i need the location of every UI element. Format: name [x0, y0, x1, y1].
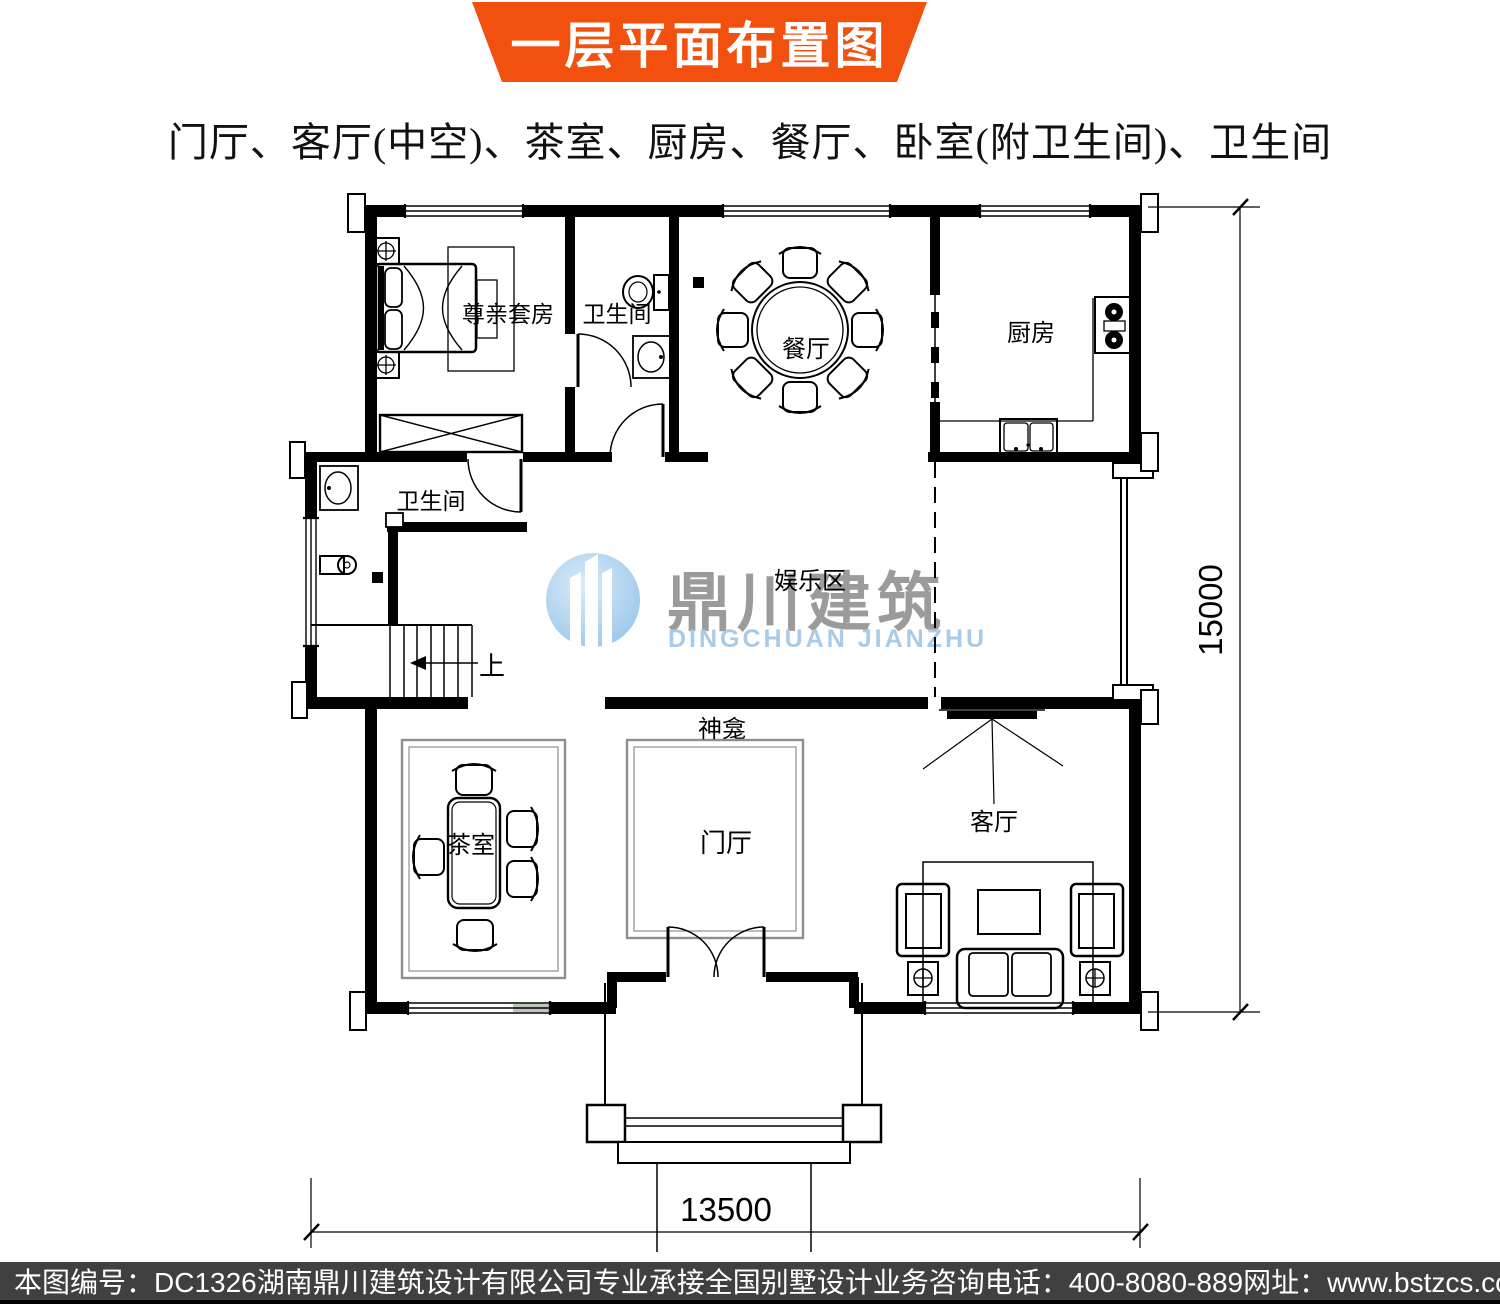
- watermark-logo: 鼎川建筑 DINGCHUAN JIANZHU: [541, 541, 987, 653]
- sofa-set: [897, 862, 1123, 1008]
- room-label-dining: 餐厅: [782, 336, 830, 363]
- wall-cap: [386, 513, 403, 527]
- kitchen-counter: [940, 297, 1130, 421]
- dining-table: [717, 247, 883, 413]
- doors: [468, 334, 764, 977]
- room-label-kitchen: 厨房: [1007, 320, 1055, 347]
- footer-company: 湖南鼎川建筑设计有限公司专业承接全国别墅设计业务: [257, 1261, 929, 1301]
- switch-icon: [693, 277, 704, 288]
- kitchen-sliding-door: [931, 295, 939, 402]
- footer-phone: 咨询电话：400-8080-889: [929, 1261, 1243, 1301]
- footer-drawing-number: 本图编号：DC1326: [14, 1261, 257, 1301]
- urinal-icon: [320, 556, 356, 574]
- title-banner: 一层平面布置图: [472, 2, 927, 82]
- dimension-right-label: 15000: [1192, 564, 1229, 656]
- bath-mid-sink-icon: [320, 466, 358, 510]
- bath-top-sink-icon: [633, 336, 672, 378]
- dimension-right: 15000: [1148, 199, 1260, 1020]
- room-list-subtitle: 门厅、客厅(中空)、茶室、厨房、餐厅、卧室(附卫生间)、卫生间: [0, 110, 1500, 168]
- stairs-up-label: 上: [479, 651, 505, 681]
- floor-drain-icon: [372, 572, 383, 583]
- tv-icon: [923, 710, 1063, 804]
- dimension-bottom-label: 13500: [680, 1191, 772, 1228]
- room-label-foyer: 门厅: [700, 828, 752, 858]
- stairs: [311, 625, 478, 697]
- room-label-tea-room: 茶室: [447, 832, 495, 859]
- room-label-living: 客厅: [970, 809, 1018, 836]
- floor-plan: 鼎川建筑 DINGCHUAN JIANZHU: [0, 0, 1500, 1304]
- room-label-bath-mid: 卫生间: [397, 488, 466, 514]
- room-label-master-suite: 尊亲套房: [462, 301, 554, 327]
- tea-room-rug: [402, 740, 565, 978]
- dimension-bottom: 13500: [304, 1178, 1148, 1248]
- page-title: 一层平面布置图: [511, 6, 889, 78]
- wardrobe: [380, 415, 522, 452]
- kitchen-sink-icon: [1000, 419, 1057, 455]
- watermark-en-text: DINGCHUAN JIANZHU: [668, 625, 987, 653]
- footer-website: 网址：www.bstzcs.com: [1243, 1261, 1500, 1301]
- room-label-entertainment: 娱乐区: [774, 568, 846, 595]
- page: 鼎川建筑 DINGCHUAN JIANZHU: [0, 0, 1500, 1304]
- footer-bar: 本图编号：DC1326 湖南鼎川建筑设计有限公司专业承接全国别墅设计业务 咨询电…: [0, 1262, 1500, 1304]
- room-label-shrine: 神龛: [698, 716, 746, 743]
- room-label-bath-top: 卫生间: [583, 301, 652, 327]
